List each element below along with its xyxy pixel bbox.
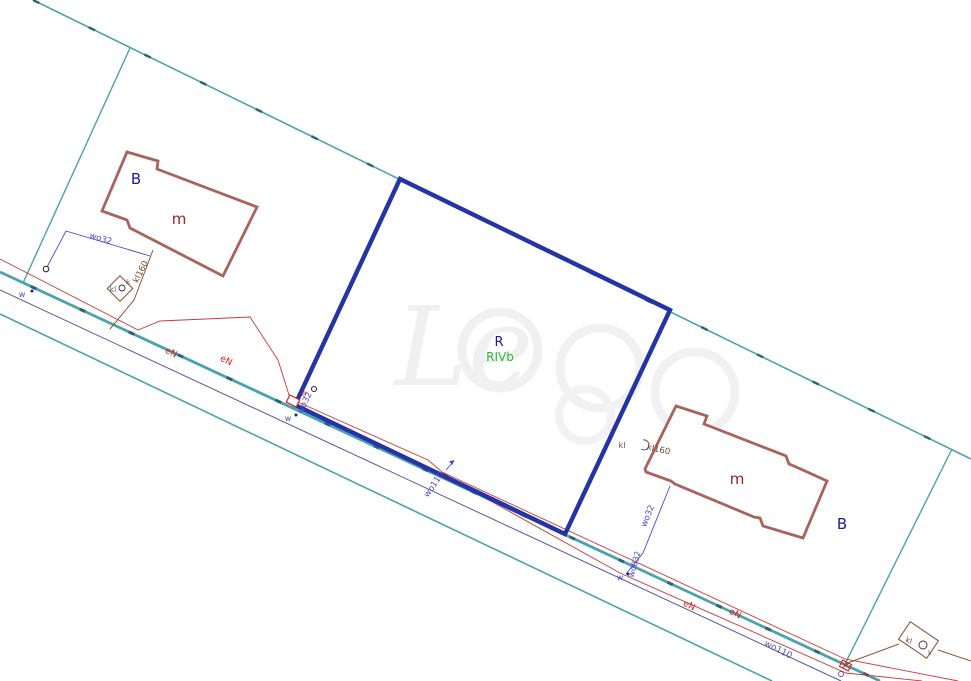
east-boundary-line <box>845 449 952 664</box>
parcel-class-label: R <box>494 335 503 350</box>
sewer-box-left-label: kl <box>110 285 116 294</box>
water-valve-label-left: w <box>19 290 26 299</box>
water-service-label-left: wo32 <box>88 231 113 247</box>
water-valve-label-right: w <box>617 573 624 582</box>
sewer-box-left: kl k <box>107 276 132 301</box>
sewer-box-left-sub: k <box>126 278 130 286</box>
valve-circle-icon <box>839 672 844 677</box>
valve-dot-icon <box>31 290 34 293</box>
sewer-box-right-rect <box>899 622 939 658</box>
sewer-prefix-label-right: kl <box>619 441 626 450</box>
west-boundary-line <box>23 48 130 283</box>
cadastral-map-view[interactable]: Le kl <box>0 0 971 681</box>
building-label-left: m <box>172 210 187 228</box>
building-label-right: m <box>730 470 745 488</box>
landuse-label-left: B <box>131 170 141 188</box>
sewer-lines <box>110 250 971 664</box>
watermark-ring <box>559 389 611 441</box>
road-far-edge-line <box>0 314 772 681</box>
sewer-label-left: kl160 <box>131 259 151 284</box>
power-line-lower <box>442 472 922 681</box>
power-label-3: eN <box>681 599 696 613</box>
sewer-service-right-b <box>938 650 971 661</box>
power-label-2: eN <box>218 354 233 368</box>
water-main-label-right: wo110 <box>762 639 794 662</box>
power-label-1: eN <box>163 346 178 360</box>
landuse-label-right: B <box>837 515 847 533</box>
water-main-label-center: wo110 <box>422 470 446 499</box>
sewer-box-right-sub: k <box>928 649 932 657</box>
hydrant-circle-icon <box>312 387 317 392</box>
valve-dot-icon <box>295 414 298 417</box>
soil-class-label: RIVb <box>486 350 514 364</box>
hydrant-circle-icon <box>43 266 49 272</box>
power-label-4: eN <box>727 607 742 621</box>
sewer-box-right: kl k <box>899 622 939 658</box>
map-canvas: Le kl <box>0 0 971 681</box>
water-valve-label-corner: w <box>285 414 292 423</box>
